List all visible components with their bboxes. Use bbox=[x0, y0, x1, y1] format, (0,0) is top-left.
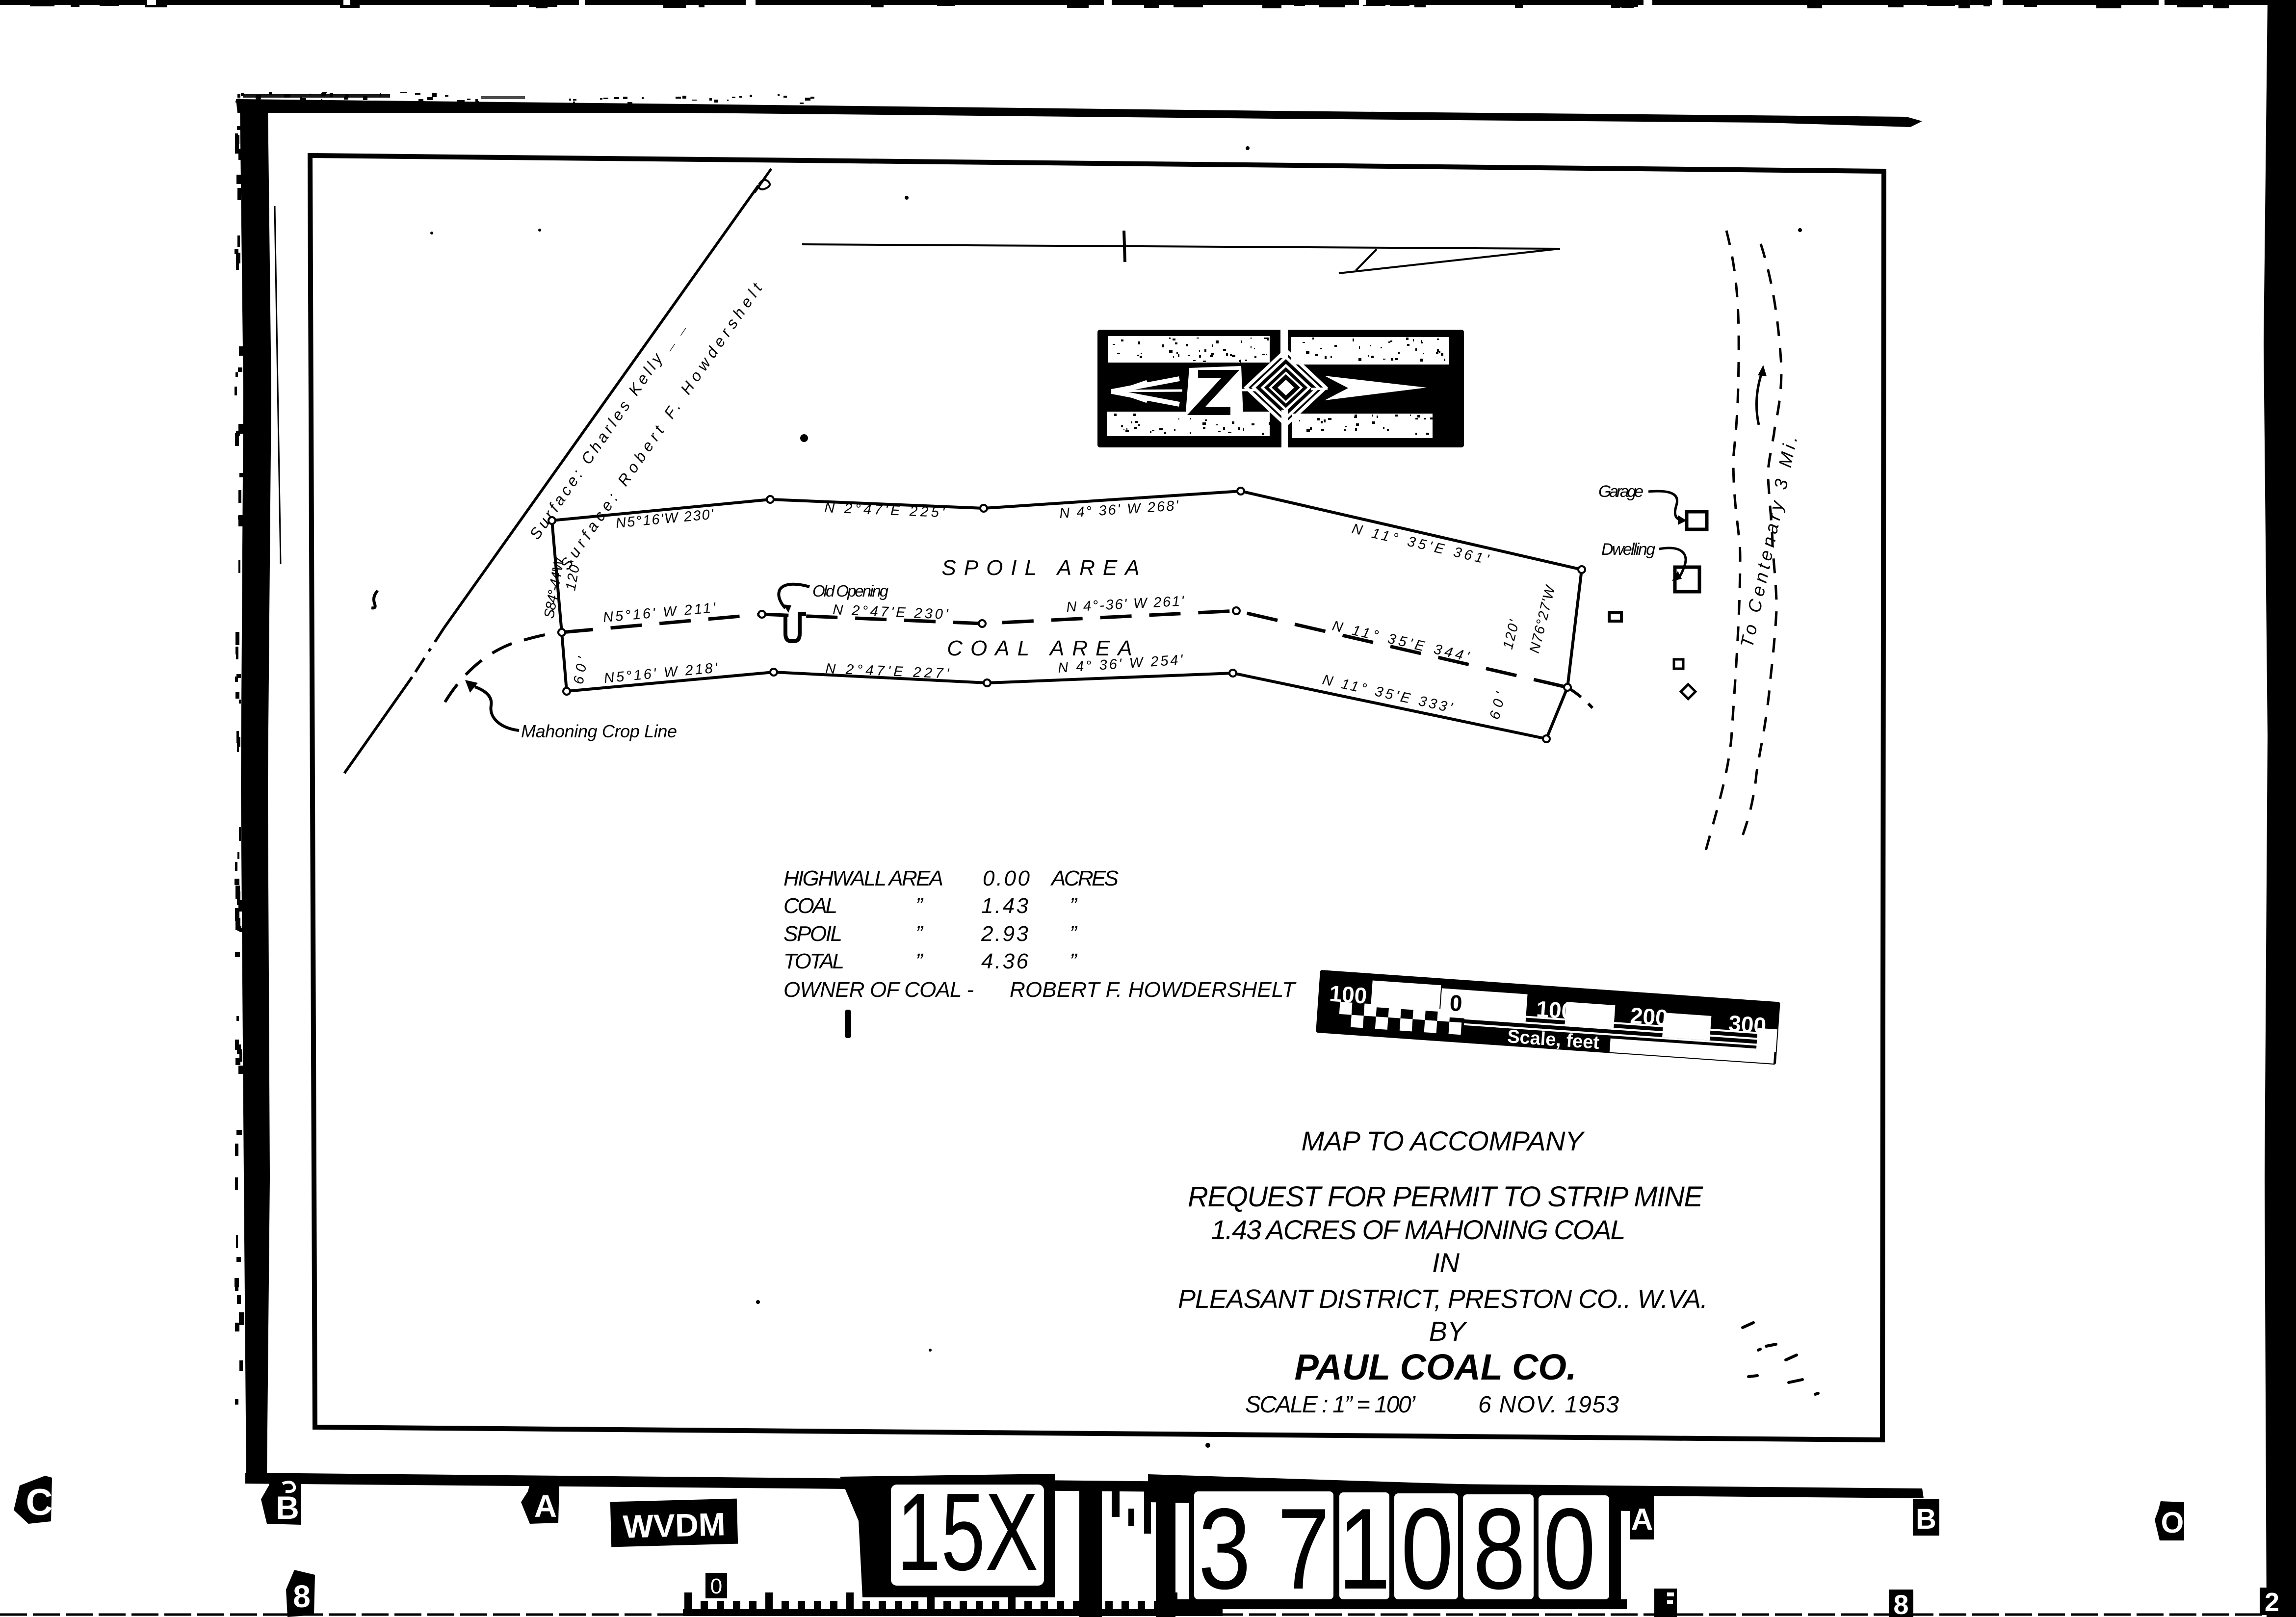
svg-text:1.43: 1.43 bbox=[981, 894, 1029, 918]
svg-text:OWNER OF COAL -: OWNER OF COAL - bbox=[783, 978, 974, 1002]
svg-text:COAL: COAL bbox=[783, 894, 837, 918]
svg-text:8: 8 bbox=[1473, 1484, 1525, 1614]
svg-text:Old Opening: Old Opening bbox=[812, 582, 889, 600]
svg-text:1.43 ACRES OF MAHONING COAL: 1.43 ACRES OF MAHONING COAL bbox=[1211, 1214, 1626, 1245]
svg-text:SCALE : 1” = 100’: SCALE : 1” = 100’ bbox=[1245, 1392, 1416, 1418]
svg-text:8: 8 bbox=[1893, 1589, 1908, 1617]
svg-text:IN: IN bbox=[1432, 1247, 1460, 1278]
svg-text:ACRES: ACRES bbox=[1050, 866, 1119, 890]
svg-text:7: 7 bbox=[1277, 1484, 1330, 1614]
svg-text:1: 1 bbox=[1338, 1484, 1390, 1614]
svg-text:REQUEST FOR PERMIT TO STRI: REQUEST FOR PERMIT TO STRIP MINE bbox=[1188, 1181, 1703, 1213]
svg-text:PLEASANT DISTRICT, PRESTON: PLEASANT DISTRICT, PRESTON CO.. W.VA. bbox=[1178, 1284, 1708, 1314]
svg-text:4.36: 4.36 bbox=[981, 949, 1029, 973]
svg-text:A: A bbox=[1631, 1503, 1653, 1537]
svg-text:SPOIL AREA: SPOIL AREA bbox=[941, 556, 1147, 580]
svg-text:100: 100 bbox=[1329, 980, 1368, 1008]
svg-text:0.00: 0.00 bbox=[983, 866, 1030, 890]
svg-text:MAP TO ACCOMPANY: MAP TO ACCOMPANY bbox=[1302, 1125, 1586, 1156]
svg-text:”: ” bbox=[1070, 894, 1078, 918]
svg-text:B: B bbox=[276, 1489, 299, 1526]
svg-text:Mahoning Crop Line: Mahoning Crop Line bbox=[521, 721, 677, 741]
svg-text:PAUL COAL CO.: PAUL COAL CO. bbox=[1295, 1347, 1577, 1387]
svg-text:15X: 15X bbox=[897, 1470, 1038, 1593]
svg-text:SPOIL: SPOIL bbox=[783, 922, 842, 946]
svg-text:HIGHWALL AREA: HIGHWALL AREA bbox=[783, 866, 943, 890]
svg-text:0: 0 bbox=[1449, 990, 1463, 1017]
svg-text:C: C bbox=[26, 1482, 53, 1523]
svg-text:0: 0 bbox=[710, 1574, 722, 1598]
svg-text:”: ” bbox=[915, 922, 924, 946]
svg-text:300: 300 bbox=[1728, 1010, 1767, 1038]
svg-text:2.93: 2.93 bbox=[981, 922, 1029, 946]
svg-text:A: A bbox=[534, 1488, 557, 1524]
svg-text:6 NOV. 1953: 6 NOV. 1953 bbox=[1478, 1392, 1619, 1418]
svg-text:BY: BY bbox=[1429, 1316, 1467, 1347]
svg-text:8: 8 bbox=[293, 1579, 311, 1614]
svg-text:0: 0 bbox=[1401, 1484, 1453, 1614]
svg-text:ROBERT F. HOWDERSHELT: ROBERT F. HOWDERSHELT bbox=[1010, 978, 1297, 1002]
svg-text:200: 200 bbox=[1629, 1002, 1669, 1030]
svg-text:B: B bbox=[1916, 1503, 1936, 1535]
svg-text:”: ” bbox=[915, 894, 924, 918]
svg-text:3: 3 bbox=[1198, 1484, 1251, 1614]
svg-text:O: O bbox=[2161, 1506, 2184, 1539]
svg-text:Dwelling: Dwelling bbox=[1601, 540, 1655, 559]
svg-text:”: ” bbox=[1070, 949, 1078, 973]
svg-text:2: 2 bbox=[2265, 1588, 2279, 1617]
svg-text:100: 100 bbox=[1536, 996, 1575, 1024]
svg-text:0: 0 bbox=[1543, 1484, 1595, 1614]
svg-text:”: ” bbox=[1070, 922, 1078, 946]
svg-text:”: ” bbox=[915, 949, 924, 973]
svg-text:Garage: Garage bbox=[1598, 482, 1644, 501]
svg-text:WVDM: WVDM bbox=[623, 1506, 726, 1544]
svg-text:TOTAL: TOTAL bbox=[783, 949, 844, 973]
